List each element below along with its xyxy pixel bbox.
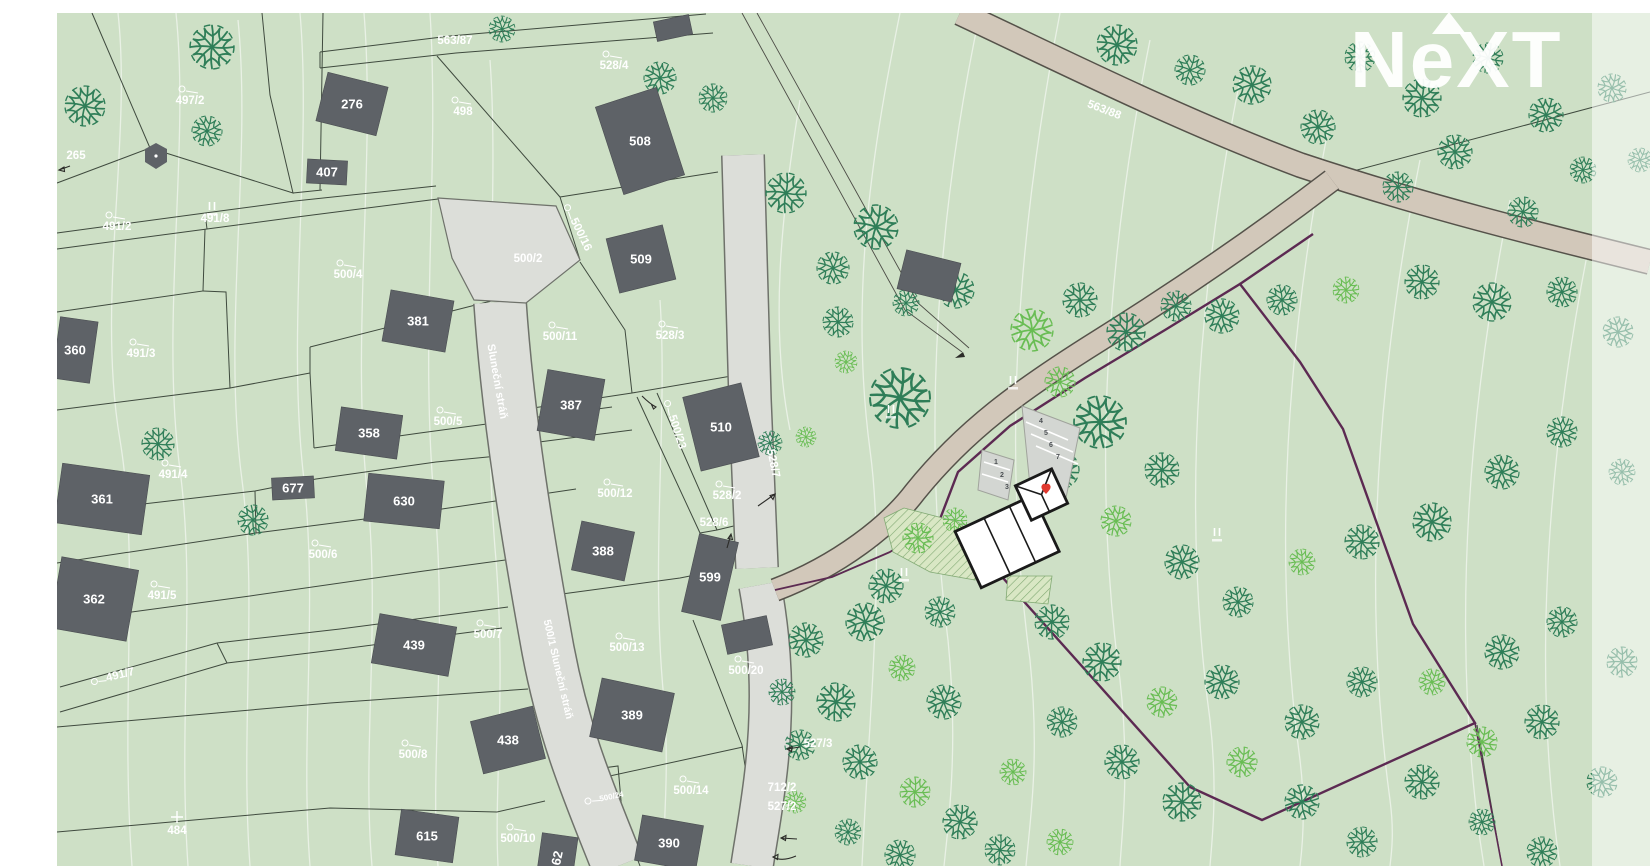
svg-text:500/12: 500/12 <box>597 488 632 500</box>
building-677: 677 <box>271 476 314 500</box>
building-number: 439 <box>403 638 425 653</box>
right-fade-strip <box>1592 0 1650 866</box>
svg-text:491/3: 491/3 <box>127 348 156 360</box>
building-number: 362 <box>83 592 105 607</box>
building-number: 510 <box>710 420 732 435</box>
parcel-label: 527/2 <box>768 801 797 813</box>
parking-space-number: 5 <box>1044 430 1048 437</box>
hexagon-dot <box>154 154 157 157</box>
building-358: 358 <box>335 407 403 459</box>
left-margin <box>0 0 57 866</box>
building-number: 407 <box>316 165 338 180</box>
parcel-label: 528/6 <box>700 517 729 529</box>
building-number: 630 <box>393 494 415 509</box>
svg-text:484: 484 <box>167 825 187 837</box>
cadastral-map: 2764075085095103813873586776303885993603… <box>0 0 1650 866</box>
parking-space-number: 2 <box>1000 472 1004 479</box>
map-canvas: 2764075085095103813873586776303885993603… <box>0 0 1650 866</box>
building-number: 599 <box>699 570 721 585</box>
parcel-label: 712/2 <box>768 782 797 794</box>
svg-text:500/5: 500/5 <box>434 416 463 428</box>
building-number: 361 <box>91 492 113 507</box>
tree-symbol <box>900 777 930 807</box>
svg-text:528/2: 528/2 <box>713 490 742 502</box>
svg-text:500/10: 500/10 <box>500 833 535 845</box>
svg-text:563/87: 563/87 <box>437 35 472 47</box>
svg-text:528/6: 528/6 <box>700 517 729 529</box>
svg-text:500/11: 500/11 <box>543 331 578 343</box>
svg-text:500/2: 500/2 <box>514 253 543 265</box>
parking-space-number: 7 <box>1056 454 1060 461</box>
parcel-label: 491/8 <box>201 213 230 225</box>
building-number: 677 <box>282 481 304 496</box>
svg-text:527/2: 527/2 <box>768 801 797 813</box>
building-387: 387 <box>537 369 605 440</box>
building-number: 438 <box>497 733 519 748</box>
parcel-label: 563/87 <box>437 35 472 47</box>
svg-text:527/3: 527/3 <box>804 738 833 750</box>
svg-text:491/4: 491/4 <box>159 469 188 481</box>
top-margin <box>0 0 1650 13</box>
building-62: 62 <box>536 833 578 866</box>
next-watermark: NeXT <box>1350 20 1563 100</box>
building-number: 509 <box>630 252 652 267</box>
building-number: 615 <box>416 829 438 844</box>
svg-text:528/4: 528/4 <box>600 60 629 72</box>
building-407: 407 <box>306 159 347 185</box>
svg-text:491/2: 491/2 <box>103 221 132 233</box>
building-number: 508 <box>629 134 651 149</box>
building-number: 388 <box>592 544 614 559</box>
building-362: 362 <box>49 557 138 641</box>
svg-text:265: 265 <box>66 150 86 162</box>
building-360: 360 <box>52 317 98 384</box>
building-388: 388 <box>571 521 634 581</box>
parcel-label: 527/3 <box>804 738 833 750</box>
logo-arrow-icon <box>1432 12 1466 34</box>
svg-text:500/14: 500/14 <box>673 785 709 797</box>
building-number: 381 <box>407 314 429 329</box>
svg-text:528/3: 528/3 <box>656 330 685 342</box>
building-number: 358 <box>358 426 380 441</box>
svg-text:500/8: 500/8 <box>399 749 428 761</box>
tree-symbol <box>190 25 234 69</box>
building-number: 360 <box>64 343 86 358</box>
parking-space-number: 3 <box>1005 484 1009 491</box>
parcel-label: 265 <box>66 150 86 162</box>
svg-text:500/7: 500/7 <box>474 629 503 641</box>
building-361: 361 <box>54 463 149 535</box>
parking-space-number: 4 <box>1039 418 1043 425</box>
svg-text:500/4: 500/4 <box>334 269 363 281</box>
building-630: 630 <box>364 473 445 529</box>
svg-text:497/2: 497/2 <box>176 95 205 107</box>
building-number: 276 <box>341 97 363 112</box>
building-381: 381 <box>382 290 454 352</box>
parking-space-number: 1 <box>994 459 998 466</box>
building-615: 615 <box>395 809 459 863</box>
parcel-label: 500/2 <box>514 253 543 265</box>
svg-text:712/2: 712/2 <box>768 782 797 794</box>
building-number: 390 <box>658 836 680 851</box>
building-number: 389 <box>621 708 643 723</box>
svg-text:500/6: 500/6 <box>309 549 338 561</box>
svg-text:491/5: 491/5 <box>148 590 177 602</box>
svg-text:491/8: 491/8 <box>201 213 230 225</box>
svg-text:498: 498 <box>453 106 473 118</box>
svg-text:500/20: 500/20 <box>728 665 763 677</box>
parking-space-number: 6 <box>1049 442 1053 449</box>
building-number: 387 <box>560 398 582 413</box>
svg-text:500/13: 500/13 <box>609 642 644 654</box>
